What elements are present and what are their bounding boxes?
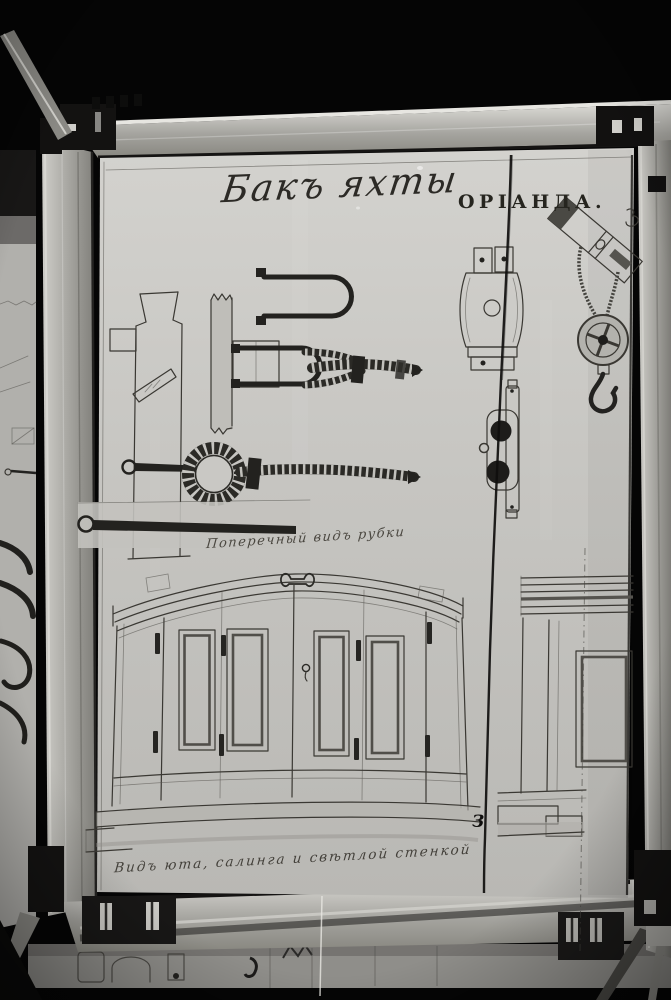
drawing-title-caps: ОРІАНДА. xyxy=(458,191,606,213)
photograph-of-framed-drawing: Бакъ яхты ОРІАНДА. Поперечный видъ рубки… xyxy=(0,0,671,1000)
crack-annotation-mark: З xyxy=(472,812,484,832)
